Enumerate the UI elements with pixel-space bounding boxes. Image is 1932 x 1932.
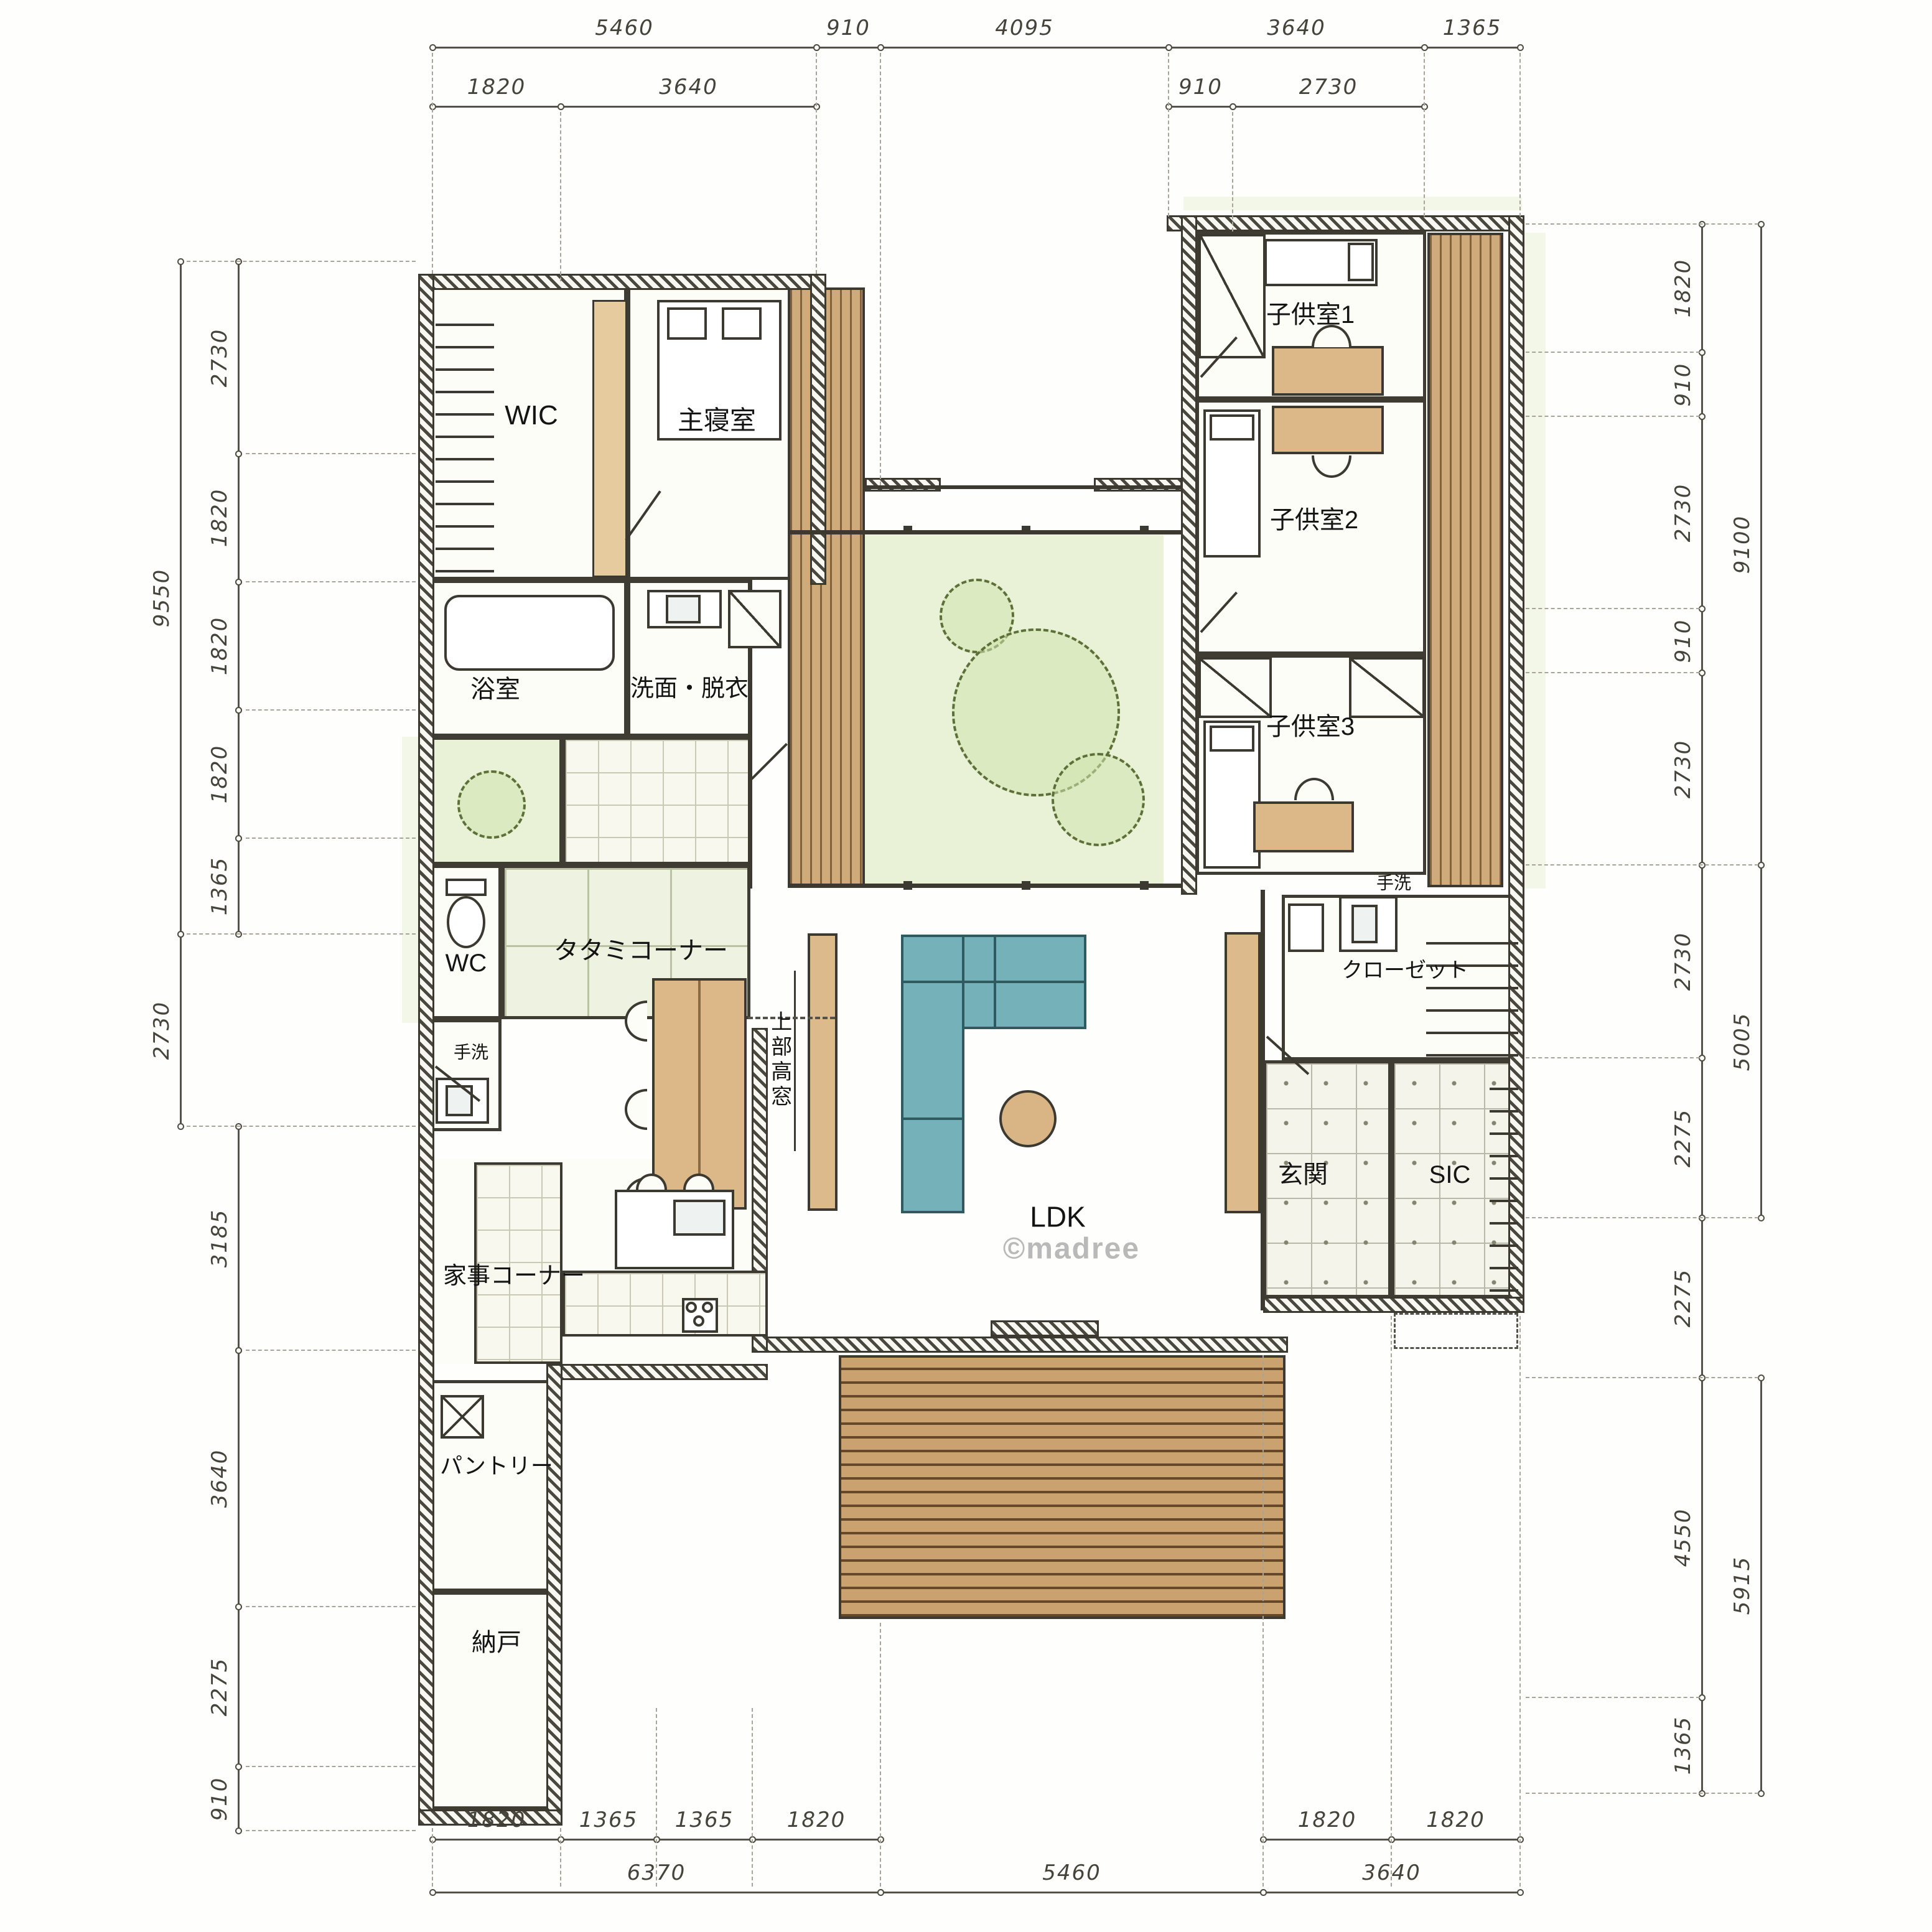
dim-label: 2275 bbox=[1671, 1268, 1696, 1327]
dim-tick bbox=[235, 1763, 242, 1770]
dim-line bbox=[752, 1839, 880, 1841]
dim-tick bbox=[177, 258, 184, 265]
extension-line bbox=[187, 933, 416, 935]
dim-tick bbox=[1230, 103, 1236, 110]
dim-tick bbox=[1260, 1889, 1267, 1896]
extension-line bbox=[1526, 416, 1700, 417]
floor-plan: 5460910409536401365182036409102730182013… bbox=[0, 0, 1932, 1932]
dim-line bbox=[1760, 224, 1762, 865]
wic-closet-strip bbox=[592, 300, 627, 577]
dim-line bbox=[1701, 352, 1703, 416]
dim-tick bbox=[235, 1347, 242, 1354]
desk-kids1 bbox=[1272, 346, 1384, 396]
extension-line bbox=[187, 1126, 416, 1127]
ext-green-right bbox=[1523, 233, 1546, 889]
extension-line bbox=[880, 1623, 881, 1887]
kids-room-1-label: 子供室1 bbox=[1266, 301, 1355, 329]
extension-line bbox=[246, 1606, 416, 1607]
extension-line bbox=[656, 1708, 657, 1887]
bathroom-label: 浴室 bbox=[470, 676, 520, 703]
kids-room-2-label: 子供室2 bbox=[1270, 506, 1358, 534]
extension-line bbox=[1526, 672, 1700, 673]
dim-line bbox=[180, 934, 182, 1126]
dim-tick bbox=[558, 103, 564, 110]
post bbox=[1022, 881, 1030, 890]
dim-line bbox=[561, 1839, 656, 1841]
dim-tick bbox=[235, 1603, 242, 1610]
extension-line bbox=[752, 1708, 753, 1887]
dim-tick bbox=[429, 44, 436, 51]
sofa-seam bbox=[994, 937, 996, 1027]
sic-label: SIC bbox=[1429, 1161, 1471, 1188]
dim-line bbox=[1701, 416, 1703, 609]
dim-label: 5915 bbox=[1730, 1556, 1755, 1615]
extension-line bbox=[560, 112, 561, 281]
storage-label: 納戸 bbox=[472, 1629, 521, 1656]
dim-label: 9100 bbox=[1730, 515, 1755, 574]
dim-line bbox=[238, 582, 240, 710]
extension-line bbox=[1168, 53, 1169, 217]
kaji-corner-label: 家事コーナー bbox=[443, 1264, 585, 1290]
tatami-corner-label: タタミコーナー bbox=[554, 937, 728, 964]
deck-east bbox=[1427, 233, 1503, 887]
shrub bbox=[457, 770, 526, 839]
dim-line bbox=[656, 1839, 752, 1841]
extension-line bbox=[816, 53, 817, 274]
extension-line bbox=[1526, 223, 1758, 225]
dim-line bbox=[1701, 1697, 1703, 1793]
sofa-seam bbox=[903, 1118, 963, 1120]
dim-line bbox=[238, 454, 240, 582]
vanity-sink bbox=[666, 595, 701, 623]
wall bbox=[991, 1320, 1099, 1337]
wic-hangers bbox=[436, 312, 494, 572]
ldk-label: LDK bbox=[1030, 1202, 1085, 1233]
pillow bbox=[722, 307, 762, 340]
dim-line bbox=[432, 1839, 561, 1841]
extension-line bbox=[1526, 1377, 1758, 1378]
dim-line bbox=[1760, 1378, 1762, 1793]
dim-label: 1820 bbox=[207, 745, 232, 804]
dim-label: 2730 bbox=[149, 1001, 174, 1060]
kids-room-3-label: 子供室3 bbox=[1266, 713, 1355, 740]
wall-line bbox=[865, 485, 1182, 489]
extension-line bbox=[246, 838, 416, 839]
extension-line bbox=[1232, 112, 1233, 231]
hand-basin-bowl bbox=[1351, 905, 1378, 943]
dim-line bbox=[238, 1350, 240, 1607]
dim-line bbox=[1233, 106, 1424, 108]
wall bbox=[810, 274, 826, 585]
dim-line bbox=[238, 1766, 240, 1831]
dim-label: 3640 bbox=[207, 1449, 232, 1508]
wall bbox=[546, 1364, 768, 1380]
dim-line bbox=[1391, 1839, 1520, 1841]
dim-tick bbox=[1758, 1790, 1765, 1797]
dim-line bbox=[1701, 1218, 1703, 1378]
dim-label: 910 bbox=[826, 16, 870, 40]
dim-tick bbox=[235, 1827, 242, 1834]
dim-line bbox=[238, 710, 240, 838]
dim-label: 2275 bbox=[1671, 1108, 1696, 1167]
wall bbox=[752, 1337, 1288, 1353]
handwash-label-right: 手洗 bbox=[1376, 874, 1411, 894]
pillow bbox=[1210, 414, 1254, 441]
wall bbox=[546, 1364, 562, 1826]
pantry-label: パントリー bbox=[440, 1454, 553, 1478]
kitchen-sink bbox=[673, 1200, 726, 1236]
dim-tick bbox=[177, 1123, 184, 1130]
dim-tick bbox=[1517, 44, 1524, 51]
dim-label: 1820 bbox=[1298, 1808, 1357, 1832]
hall-utility bbox=[562, 737, 752, 865]
tatami-open-edge bbox=[748, 1017, 835, 1019]
dim-label: 1365 bbox=[579, 1808, 638, 1832]
sofa-seam bbox=[901, 981, 1085, 983]
extension-line bbox=[246, 1830, 416, 1831]
extension-line bbox=[1262, 1355, 1264, 1887]
dim-label: 9550 bbox=[149, 568, 174, 627]
extension-line bbox=[432, 53, 433, 274]
dim-line bbox=[180, 261, 182, 934]
deck-west bbox=[788, 287, 865, 886]
dim-line bbox=[238, 1126, 240, 1350]
dim-label: 1820 bbox=[1671, 259, 1696, 318]
dim-tick bbox=[1758, 862, 1765, 869]
dim-label: 1820 bbox=[207, 488, 232, 548]
extension-line bbox=[246, 453, 416, 454]
dim-label: 2730 bbox=[1299, 75, 1358, 100]
entrance-label: 玄関 bbox=[1278, 1161, 1328, 1188]
dim-tick bbox=[235, 835, 242, 842]
dim-label: 1820 bbox=[467, 1808, 526, 1832]
wall-line bbox=[794, 971, 796, 1151]
sic-shelves bbox=[1490, 1068, 1518, 1292]
dim-line bbox=[238, 838, 240, 934]
dim-line bbox=[561, 106, 816, 108]
toilet-bowl bbox=[447, 896, 485, 948]
wc-label: WC bbox=[446, 950, 487, 977]
extension-line bbox=[1526, 864, 1758, 866]
dim-line bbox=[1169, 106, 1233, 108]
post bbox=[1022, 526, 1030, 534]
dim-tick bbox=[235, 707, 242, 714]
dim-line bbox=[432, 1892, 880, 1893]
dim-line bbox=[238, 261, 240, 454]
dim-label: 1365 bbox=[207, 857, 232, 916]
burner bbox=[686, 1302, 697, 1313]
side-table bbox=[999, 1090, 1057, 1147]
extension-line bbox=[1519, 53, 1521, 217]
dim-tick bbox=[1758, 1374, 1765, 1381]
extension-line bbox=[1526, 608, 1700, 609]
dim-label: 2275 bbox=[207, 1657, 232, 1716]
extension-line bbox=[246, 1766, 416, 1767]
watermark: ©madree bbox=[1003, 1233, 1140, 1266]
post bbox=[1140, 526, 1149, 534]
dim-line bbox=[1760, 865, 1762, 1218]
dim-label: 1365 bbox=[675, 1808, 734, 1832]
pillow bbox=[667, 307, 707, 340]
dim-line bbox=[432, 106, 561, 108]
bathtub bbox=[444, 595, 615, 671]
dim-label: 3640 bbox=[1267, 16, 1326, 40]
extension-line bbox=[880, 53, 881, 485]
wall-line bbox=[788, 884, 1182, 888]
wall bbox=[1094, 478, 1182, 492]
dim-tick bbox=[177, 931, 184, 938]
dim-label: 1820 bbox=[467, 75, 526, 100]
dim-label: 3640 bbox=[659, 75, 718, 100]
extension-line bbox=[1526, 1217, 1758, 1218]
dim-label: 910 bbox=[1671, 618, 1696, 663]
handwash-label-left: 手洗 bbox=[454, 1043, 488, 1063]
dim-line bbox=[1701, 673, 1703, 865]
dim-label: 1365 bbox=[1443, 16, 1502, 40]
toilet-tank bbox=[446, 879, 487, 896]
dim-line bbox=[1424, 47, 1520, 49]
counter-south bbox=[562, 1271, 768, 1337]
approach bbox=[1394, 1313, 1518, 1349]
tv-board-band bbox=[1225, 932, 1261, 1213]
wic-label: WIC bbox=[505, 401, 558, 431]
storage-box bbox=[441, 1395, 484, 1439]
dim-line bbox=[1263, 1839, 1391, 1841]
ext-green-left bbox=[402, 737, 419, 1023]
closet-hangers bbox=[1426, 935, 1518, 1057]
post bbox=[903, 881, 912, 890]
extension-line bbox=[246, 581, 416, 582]
extension-line bbox=[1526, 1793, 1758, 1794]
dim-line bbox=[880, 1892, 1263, 1893]
post bbox=[903, 526, 912, 534]
extension-line bbox=[187, 261, 416, 262]
wall-line bbox=[788, 530, 1182, 534]
dim-label: 5005 bbox=[1730, 1012, 1755, 1071]
ext-green-top bbox=[1183, 197, 1522, 210]
burner bbox=[702, 1302, 713, 1313]
dim-label: 5460 bbox=[1042, 1860, 1101, 1885]
extension-line bbox=[246, 1350, 416, 1351]
extension-line bbox=[1424, 53, 1425, 217]
master-bedroom-label: 主寝室 bbox=[678, 406, 756, 435]
dim-line bbox=[1169, 47, 1424, 49]
dim-tick bbox=[1165, 44, 1172, 51]
dim-line bbox=[1701, 224, 1703, 352]
extension-line bbox=[1519, 1316, 1521, 1887]
burner bbox=[693, 1315, 704, 1327]
extension-line bbox=[1391, 1316, 1392, 1887]
dim-tick bbox=[1758, 221, 1765, 228]
dim-label: 910 bbox=[1671, 362, 1696, 406]
pillow bbox=[1348, 243, 1374, 281]
dim-label: 1365 bbox=[1671, 1716, 1696, 1775]
wall bbox=[1167, 215, 1524, 231]
desk-kids2 bbox=[1272, 406, 1384, 454]
post bbox=[1140, 881, 1149, 890]
closet-label: クローゼット bbox=[1342, 959, 1468, 982]
extension-line bbox=[1526, 352, 1700, 353]
closet-diag bbox=[1349, 657, 1425, 718]
extension-line bbox=[560, 1828, 561, 1887]
dim-tick bbox=[235, 450, 242, 457]
dim-line bbox=[1701, 865, 1703, 1058]
dim-tick bbox=[235, 579, 242, 586]
dim-label: 910 bbox=[1178, 75, 1223, 100]
dim-tick bbox=[813, 44, 820, 51]
dim-label: 5460 bbox=[595, 16, 654, 40]
wall bbox=[865, 478, 941, 492]
dim-label: 2730 bbox=[207, 328, 232, 387]
dim-tick bbox=[1517, 1889, 1524, 1896]
dim-label: 910 bbox=[207, 1776, 232, 1821]
dim-label: 1820 bbox=[207, 617, 232, 676]
extension-line bbox=[1526, 1697, 1700, 1698]
dim-line bbox=[1701, 1378, 1703, 1697]
wall-line bbox=[1261, 890, 1265, 1310]
sofa-vertical bbox=[901, 935, 964, 1213]
wall bbox=[1263, 1297, 1524, 1313]
dim-label: 1820 bbox=[787, 1808, 846, 1832]
wall bbox=[418, 274, 826, 290]
dim-label: 2730 bbox=[1671, 483, 1696, 542]
wall bbox=[1181, 215, 1197, 895]
dim-tick bbox=[877, 44, 884, 51]
wall bbox=[418, 274, 434, 1826]
dim-label: 1820 bbox=[1426, 1808, 1485, 1832]
hand-basin-bowl bbox=[446, 1085, 473, 1116]
shrub bbox=[1052, 753, 1145, 846]
dining-chair bbox=[625, 1089, 647, 1130]
dim-tick bbox=[1421, 44, 1428, 51]
dim-tick bbox=[1758, 1215, 1765, 1221]
dim-tick bbox=[429, 1889, 436, 1896]
dim-label: 2730 bbox=[1671, 739, 1696, 798]
dim-line bbox=[238, 1607, 240, 1766]
washroom-label: 洗面・脱衣 bbox=[630, 676, 749, 702]
dim-line bbox=[1263, 1892, 1520, 1893]
room-storage bbox=[431, 1592, 562, 1809]
dim-label: 3185 bbox=[207, 1209, 232, 1268]
extension-line bbox=[246, 709, 416, 711]
dim-line bbox=[816, 47, 880, 49]
dim-label: 4095 bbox=[995, 16, 1054, 40]
dim-line bbox=[432, 47, 816, 49]
dim-line bbox=[1701, 609, 1703, 673]
pillow bbox=[1210, 726, 1254, 752]
dim-line bbox=[880, 47, 1169, 49]
extension-line bbox=[1526, 1057, 1700, 1058]
deck-south bbox=[839, 1355, 1286, 1619]
extension-line bbox=[432, 1828, 433, 1887]
dim-tick bbox=[877, 1889, 884, 1896]
desk-kids3 bbox=[1253, 801, 1354, 852]
dim-label: 2730 bbox=[1671, 932, 1696, 991]
highwindow-strip bbox=[808, 933, 838, 1211]
closet-diag bbox=[1198, 657, 1272, 718]
closet-box bbox=[1288, 903, 1324, 952]
washer bbox=[728, 590, 782, 648]
dim-line bbox=[1701, 1058, 1703, 1218]
dim-label: 4550 bbox=[1671, 1508, 1696, 1567]
highwindow-label: 上部高窓 bbox=[767, 1010, 790, 1110]
door-leaf bbox=[751, 743, 788, 780]
